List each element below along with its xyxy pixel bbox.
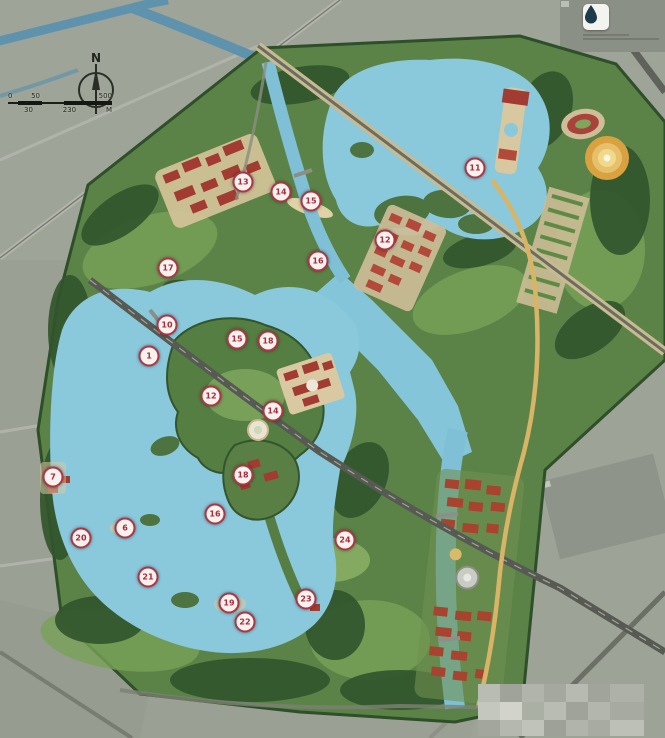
map-marker-15[interactable]: 15 bbox=[301, 191, 322, 212]
map-marker-14[interactable]: 14 bbox=[271, 182, 292, 203]
map-marker-24[interactable]: 24 bbox=[335, 530, 356, 551]
map-marker-20[interactable]: 20 bbox=[71, 528, 92, 549]
water-droplet-icon bbox=[583, 4, 599, 24]
map-marker-22[interactable]: 22 bbox=[235, 612, 256, 633]
logo-badge bbox=[583, 4, 609, 30]
mosaic-censor bbox=[478, 684, 644, 736]
map-marker-7[interactable]: 7 bbox=[43, 467, 64, 488]
scale-top-labels: 0 50 500 bbox=[8, 92, 112, 100]
sun-plaza bbox=[585, 136, 629, 180]
north-label: N bbox=[91, 51, 101, 65]
map-marker-17[interactable]: 17 bbox=[158, 258, 179, 279]
scale-bar-segments bbox=[8, 101, 112, 105]
scale-bar: 0 50 500 30 230 M bbox=[8, 92, 112, 114]
map-marker-15[interactable]: 15 bbox=[227, 329, 248, 350]
map-marker-19[interactable]: 19 bbox=[219, 593, 240, 614]
map-marker-23[interactable]: 23 bbox=[296, 589, 317, 610]
map-marker-16[interactable]: 16 bbox=[308, 251, 329, 272]
map-marker-12[interactable]: 12 bbox=[375, 230, 396, 251]
map-marker-1[interactable]: 1 bbox=[139, 346, 160, 367]
map-marker-18[interactable]: 18 bbox=[258, 331, 279, 352]
scale-bottom-labels: 30 230 M bbox=[8, 106, 112, 114]
map-marker-16[interactable]: 16 bbox=[205, 504, 226, 525]
map-marker-10[interactable]: 10 bbox=[157, 315, 178, 336]
map-marker-12[interactable]: 12 bbox=[201, 386, 222, 407]
map-marker-11[interactable]: 11 bbox=[465, 158, 486, 179]
map-marker-21[interactable]: 21 bbox=[138, 567, 159, 588]
map-marker-18[interactable]: 18 bbox=[233, 465, 254, 486]
map-marker-6[interactable]: 6 bbox=[115, 518, 136, 539]
logo-caption-lines bbox=[583, 34, 659, 40]
publisher-logo bbox=[583, 4, 659, 42]
masterplan-map: N 0 50 500 30 230 M 11121314151617101151… bbox=[0, 0, 665, 738]
map-marker-13[interactable]: 13 bbox=[233, 172, 254, 193]
map-marker-14[interactable]: 14 bbox=[263, 401, 284, 422]
